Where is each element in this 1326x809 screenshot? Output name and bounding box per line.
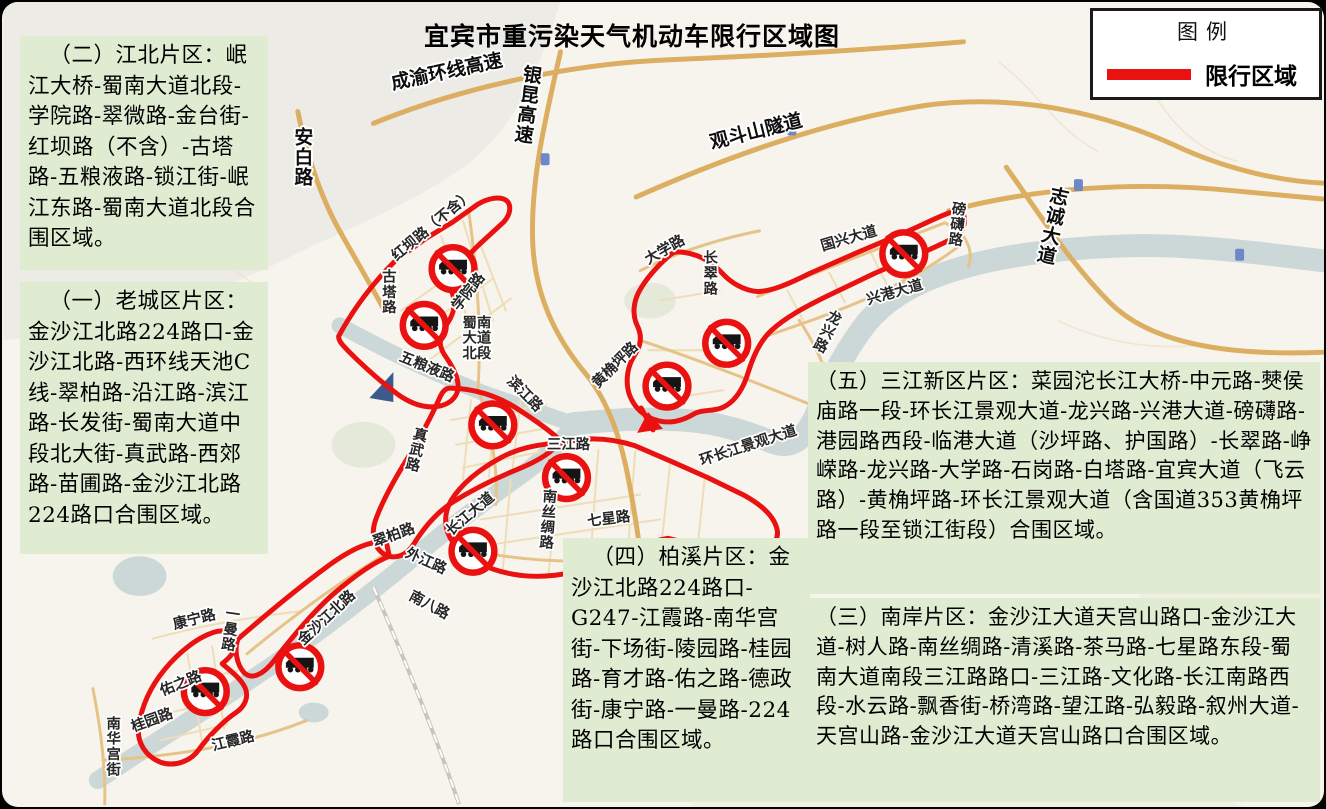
route-shield-icon: [541, 153, 550, 165]
restricted-zone-swatch-icon: [1107, 69, 1191, 80]
infobox-sanjiang-district: （五）三江新区片区：菜园沱长江大桥-中元路-僰侯庙路一段-环长江景观大道-龙兴路…: [808, 362, 1320, 594]
road-label: 蜀南大道北段: [463, 313, 492, 362]
road-label: 南华宫街: [106, 714, 122, 778]
route-shield-icon: [1074, 179, 1083, 191]
road-label: 南丝绸路: [539, 487, 558, 552]
road-label: 安白路: [294, 125, 313, 188]
road-label: 古塔路: [382, 268, 397, 317]
no-trucks-sign: [403, 304, 446, 347]
route-shield-icon: [1235, 249, 1244, 261]
legend-box: 图例 限行区域: [1090, 8, 1322, 100]
road-label: 南八路: [406, 586, 453, 622]
infobox-laocheng-district: （一）老城区片区：金沙江北路224路口-金沙江北路-西环线天池C线-翠柏路-沿江…: [20, 282, 268, 554]
infobox-baixi-district: （四）柏溪片区：金沙江北路224路口-G247-江霞路-南华宫街-下场街-陵园路…: [563, 538, 810, 802]
legend-row: 限行区域: [1107, 57, 1319, 91]
infobox-nanan-district: （三）南岸片区：金沙江大道天宫山路口-金沙江大道-树人路-南丝绸路-清溪路-茶马…: [808, 598, 1320, 802]
road-label: 真武路: [404, 424, 430, 475]
no-trucks-sign: [882, 232, 925, 275]
railway-layer: [373, 587, 459, 804]
no-trucks-sign: [646, 365, 689, 408]
legend-title: 图例: [1093, 16, 1319, 46]
legend-item-label: 限行区域: [1205, 57, 1297, 91]
page-title: 宜宾市重污染天气机动车限行区域图: [342, 17, 922, 53]
restriction-map-image: 成渝环线高速银昆高速观斗山隧道安白路志诚大道红坝路（不含）古塔路学院路蜀南大道北…: [2, 2, 1324, 807]
road-label: 黄桷坪路: [588, 337, 642, 391]
road-label: 三江路: [547, 435, 591, 453]
no-trucks-sign: [452, 530, 495, 573]
no-trucks-sign: [471, 404, 514, 447]
no-trucks-sign: [705, 322, 748, 365]
road-label: 长翠路: [704, 249, 719, 298]
road-label: 五粮液路: [397, 347, 458, 385]
infobox-jiangbei-district: （二）江北片区：岷江大桥-蜀南大道北段-学院路-翠微路-金台街-红坝路（不含）-…: [20, 36, 268, 270]
no-trucks-sign: [278, 645, 321, 688]
